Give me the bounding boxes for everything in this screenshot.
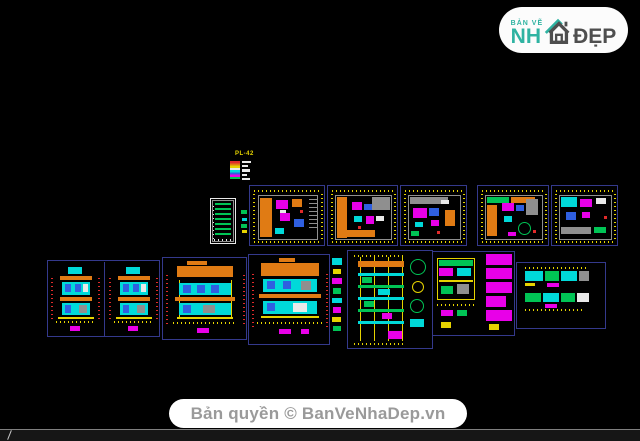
plan-frame-5 xyxy=(551,185,618,246)
copyright-watermark[interactable]: Bản quyền © BanVeNhaDep.vn xyxy=(169,399,467,428)
plan-frame-1 xyxy=(249,185,325,246)
section-frame xyxy=(347,250,433,349)
cad-viewport[interactable] xyxy=(0,0,640,430)
plan-frame-4 xyxy=(477,185,549,246)
detail-tables-frame xyxy=(516,262,606,329)
detail-strip xyxy=(330,255,346,337)
logo-dep-text: ĐẸP xyxy=(573,28,616,46)
statusbar-strip xyxy=(0,430,640,441)
house-icon xyxy=(543,16,573,48)
micro-detail xyxy=(240,210,249,236)
legend-block xyxy=(229,159,255,183)
logo-nha-text: NH xyxy=(511,28,541,46)
legend-label: PL-42 xyxy=(235,151,254,157)
copyright-text: Bản quyền © BanVeNhaDep.vn xyxy=(191,404,446,424)
plan-frame-2 xyxy=(327,185,398,246)
schedule-table xyxy=(210,198,238,246)
elevation-frame-2 xyxy=(162,257,247,340)
elevation-frame-1 xyxy=(47,260,160,337)
logo-text-column: BẢN VẼ NH xyxy=(511,20,543,46)
site-logo[interactable]: BẢN VẼ NH ĐẸP xyxy=(499,7,628,53)
details-frame xyxy=(432,251,515,336)
elevation-frame-3 xyxy=(248,254,330,345)
plan-frame-3 xyxy=(400,185,467,246)
